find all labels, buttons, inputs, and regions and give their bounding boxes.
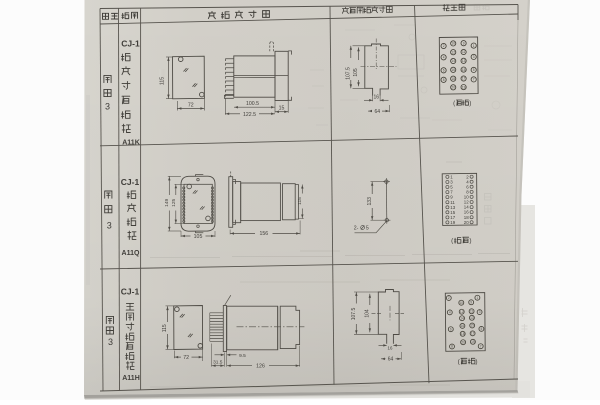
svg-text:19: 19 [462, 85, 466, 89]
svg-text:13: 13 [462, 59, 466, 63]
svg-text:18: 18 [451, 77, 455, 81]
svg-text:5: 5 [366, 225, 369, 231]
svg-text:7: 7 [473, 78, 475, 82]
svg-text:1: 1 [473, 44, 475, 48]
svg-text:115: 115 [162, 324, 168, 332]
svg-text:2: 2 [448, 296, 450, 300]
svg-text:10: 10 [451, 42, 455, 46]
svg-text:15: 15 [279, 106, 285, 112]
svg-text:104: 104 [364, 309, 370, 318]
svg-text:156: 156 [259, 231, 268, 237]
svg-text:31.5: 31.5 [213, 359, 223, 365]
svg-text:125: 125 [171, 198, 177, 206]
svg-text:20: 20 [451, 86, 455, 90]
svg-text:16: 16 [388, 345, 393, 350]
svg-text:): ) [469, 100, 471, 107]
svg-text:16: 16 [461, 324, 465, 328]
svg-text:126: 126 [256, 364, 265, 370]
svg-text:107.5: 107.5 [351, 308, 357, 321]
svg-text:12: 12 [451, 50, 455, 54]
svg-text:8: 8 [451, 345, 453, 349]
svg-text:CJ-1: CJ-1 [121, 177, 140, 187]
svg-text:1: 1 [477, 296, 479, 300]
svg-text:A11H: A11H [122, 375, 140, 382]
svg-text:4: 4 [449, 311, 451, 315]
svg-text:105: 105 [353, 68, 359, 77]
svg-text:17: 17 [471, 332, 475, 336]
svg-text:20: 20 [464, 220, 469, 225]
svg-text:133: 133 [367, 197, 373, 206]
svg-text:9: 9 [463, 41, 465, 45]
svg-text:3: 3 [108, 337, 113, 347]
svg-text:): ) [475, 358, 477, 365]
svg-text:115: 115 [160, 77, 166, 85]
svg-text:CJ-1: CJ-1 [121, 39, 140, 49]
svg-text:105: 105 [194, 234, 203, 240]
svg-text:4: 4 [443, 56, 445, 60]
svg-text:9: 9 [470, 301, 472, 305]
svg-text:20: 20 [461, 340, 465, 344]
svg-text:3: 3 [105, 102, 110, 112]
svg-text:107.5: 107.5 [345, 67, 351, 80]
svg-text:6: 6 [443, 69, 445, 73]
svg-text:14: 14 [460, 316, 464, 320]
svg-text:100.5: 100.5 [246, 101, 259, 107]
svg-text:11: 11 [462, 50, 466, 54]
svg-text:15: 15 [470, 324, 474, 328]
svg-text:3: 3 [107, 221, 112, 231]
svg-text:11: 11 [470, 310, 474, 314]
svg-text:13: 13 [470, 316, 474, 320]
svg-text:A11K: A11K [122, 140, 140, 147]
svg-text:10: 10 [460, 301, 464, 305]
svg-text:122.5: 122.5 [243, 112, 256, 118]
svg-text:2: 2 [443, 44, 445, 48]
svg-text:149: 149 [164, 198, 170, 206]
svg-text:72: 72 [183, 355, 189, 361]
svg-text:2-: 2- [354, 225, 359, 231]
svg-text:6: 6 [450, 327, 452, 331]
svg-text:115: 115 [297, 197, 303, 205]
svg-text:19: 19 [471, 340, 475, 344]
svg-text:15: 15 [462, 68, 466, 72]
svg-text:14: 14 [451, 59, 455, 63]
svg-text:17: 17 [462, 77, 466, 81]
svg-text:5: 5 [473, 68, 475, 72]
svg-text:72: 72 [188, 102, 194, 108]
svg-text:19: 19 [450, 220, 455, 225]
svg-text:3: 3 [479, 310, 481, 314]
svg-text:A11Q: A11Q [122, 250, 140, 257]
svg-text:9.5: 9.5 [239, 353, 246, 359]
svg-text:8: 8 [443, 78, 445, 82]
svg-text:CJ-1: CJ-1 [121, 287, 140, 297]
svg-text:): ) [469, 237, 471, 244]
svg-text:7: 7 [480, 344, 482, 348]
svg-text:16: 16 [451, 68, 455, 72]
svg-text:12: 12 [460, 310, 464, 314]
svg-text:3: 3 [473, 55, 475, 59]
svg-text:18: 18 [461, 332, 465, 336]
svg-text:16: 16 [374, 95, 380, 101]
svg-text:5: 5 [481, 327, 483, 331]
svg-text:64: 64 [375, 109, 381, 115]
svg-text:64: 64 [388, 357, 394, 363]
